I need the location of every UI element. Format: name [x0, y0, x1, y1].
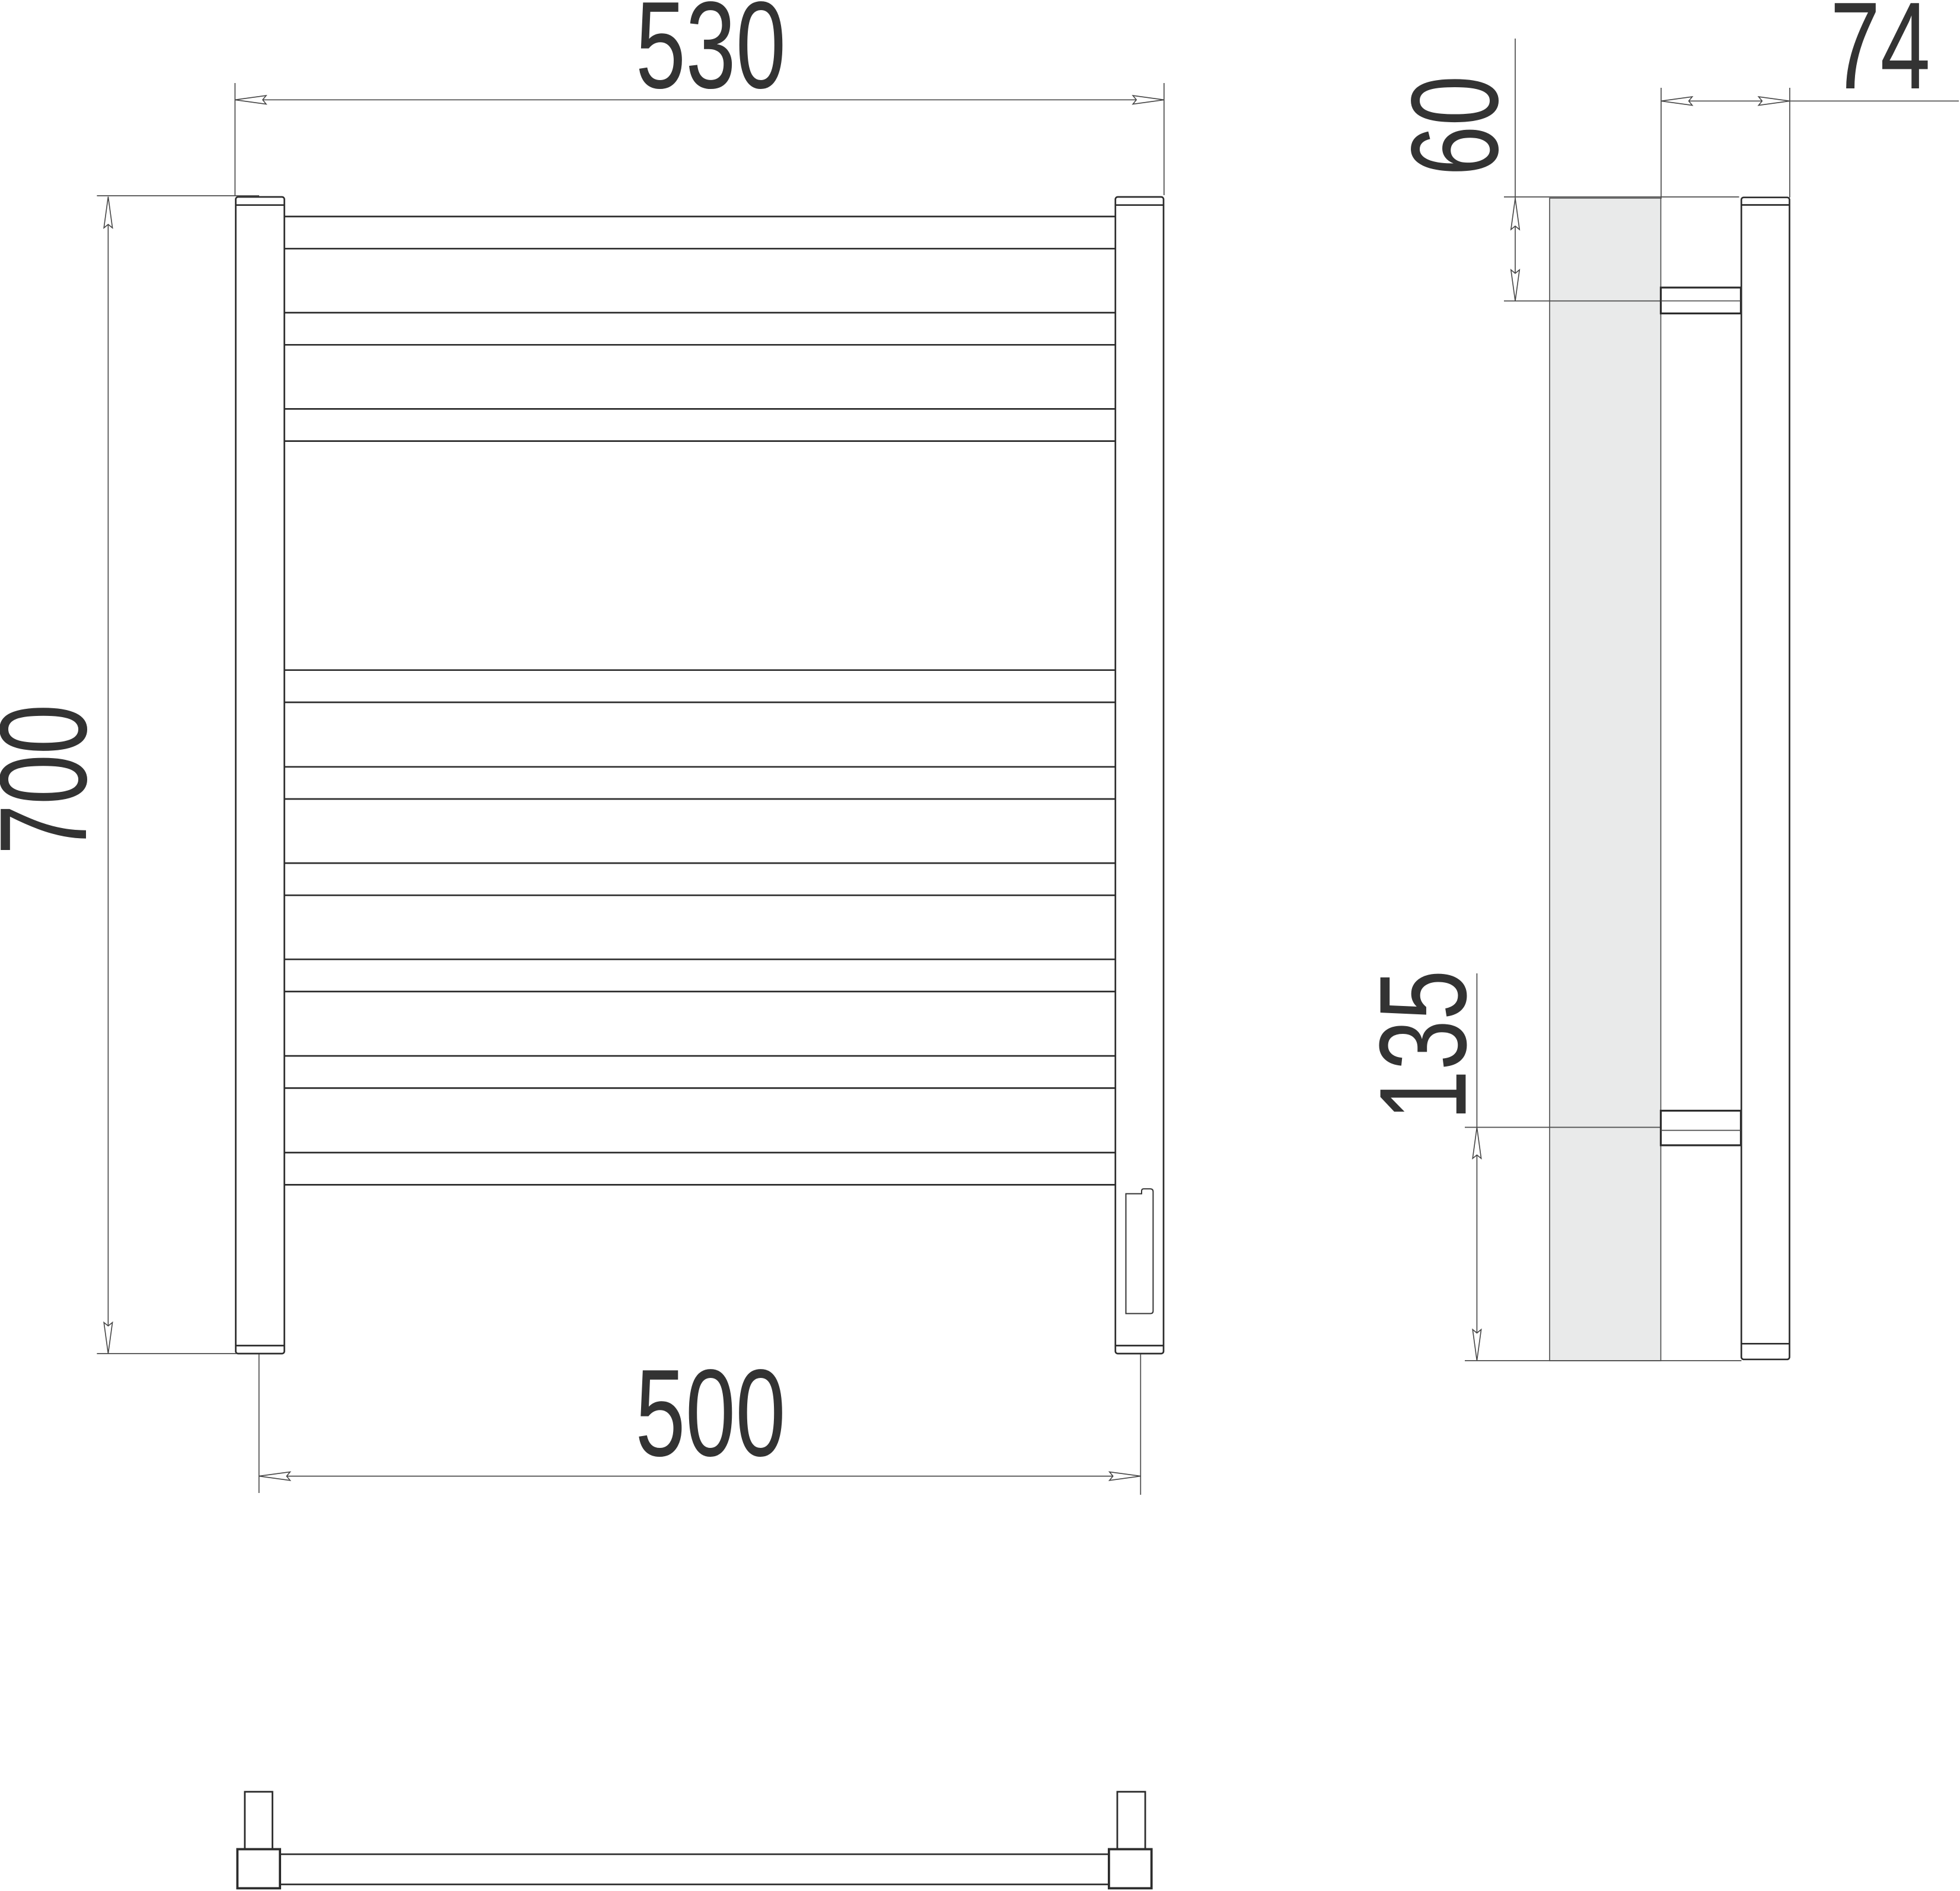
svg-text:135: 135 — [1354, 970, 1492, 1120]
svg-text:700: 700 — [0, 704, 113, 855]
svg-text:60: 60 — [1385, 75, 1524, 176]
svg-text:74: 74 — [1830, 0, 1930, 115]
svg-text:530: 530 — [636, 0, 786, 114]
svg-text:500: 500 — [635, 1344, 786, 1482]
